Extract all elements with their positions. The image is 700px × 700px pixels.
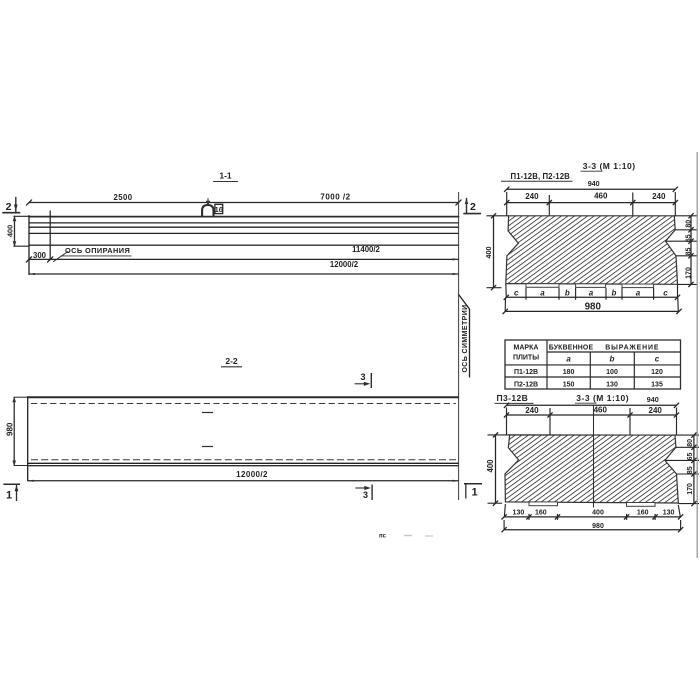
svg-text:400: 400: [6, 225, 15, 237]
svg-text:П3-12В: П3-12В: [497, 393, 529, 403]
svg-text:130: 130: [606, 381, 618, 388]
svg-text:7000 /2: 7000 /2: [320, 193, 350, 202]
svg-text:240: 240: [652, 192, 666, 201]
svg-text:b: b: [565, 289, 570, 298]
svg-text:2-2: 2-2: [225, 356, 238, 366]
svg-text:ПЛИТЫ: ПЛИТЫ: [513, 355, 539, 362]
svg-text:130: 130: [513, 510, 525, 517]
svg-text:100: 100: [606, 369, 618, 376]
svg-text:240: 240: [525, 192, 539, 201]
svg-text:ВЫРАЖЕНИЕ: ВЫРАЖЕНИЕ: [605, 345, 659, 352]
svg-text:1б: 1б: [215, 206, 224, 214]
svg-text:12000/2: 12000/2: [236, 470, 268, 479]
svg-text:460: 460: [594, 191, 608, 200]
svg-text:180: 180: [563, 369, 575, 376]
svg-text:150: 150: [563, 381, 575, 388]
svg-text:3: 3: [360, 372, 365, 382]
svg-text:a: a: [636, 289, 641, 298]
svg-text:1-1: 1-1: [219, 171, 232, 181]
svg-text:400: 400: [486, 459, 495, 473]
svg-text:65: 65: [687, 453, 694, 461]
svg-text:400: 400: [484, 246, 493, 258]
svg-text:c: c: [514, 289, 519, 298]
svg-text:ОСЬ СИММЕТРИИ: ОСЬ СИММЕТРИИ: [462, 304, 469, 372]
svg-text:b: b: [610, 355, 615, 364]
svg-text:МАРКА: МАРКА: [514, 344, 539, 351]
svg-text:3: 3: [363, 490, 368, 500]
svg-text:1: 1: [6, 490, 12, 502]
svg-text:80: 80: [685, 220, 692, 228]
svg-text:пс: пс: [379, 534, 387, 540]
svg-text:a: a: [589, 289, 594, 298]
svg-text:240: 240: [525, 406, 539, 415]
svg-text:160: 160: [637, 510, 649, 517]
svg-text:980: 980: [585, 301, 602, 312]
svg-text:2: 2: [6, 201, 12, 213]
svg-text:460: 460: [594, 406, 608, 415]
svg-text:11400/2: 11400/2: [352, 245, 380, 254]
svg-text:12000/2: 12000/2: [330, 260, 359, 269]
svg-text:80: 80: [687, 439, 694, 447]
svg-text:160: 160: [535, 510, 547, 517]
svg-text:240: 240: [649, 406, 663, 415]
svg-text:П2-12В: П2-12В: [514, 381, 538, 388]
svg-text:940: 940: [588, 179, 600, 188]
svg-text:300: 300: [33, 251, 47, 260]
svg-text:65: 65: [685, 234, 692, 242]
svg-text:1: 1: [472, 487, 478, 499]
svg-text:2: 2: [470, 201, 476, 213]
svg-text:85: 85: [685, 248, 692, 256]
svg-text:400: 400: [592, 510, 604, 517]
svg-text:3-3 (М 1:10): 3-3 (М 1:10): [576, 393, 629, 403]
svg-text:2500: 2500: [114, 193, 133, 202]
svg-text:85: 85: [687, 466, 694, 474]
svg-text:980: 980: [6, 422, 15, 436]
svg-text:940: 940: [647, 395, 659, 404]
svg-text:980: 980: [592, 523, 604, 530]
svg-text:БУКВЕННОЕ: БУКВЕННОЕ: [549, 345, 594, 352]
svg-text:a: a: [540, 289, 545, 298]
svg-text:3-3 (М 1:10): 3-3 (М 1:10): [583, 161, 636, 171]
svg-text:c: c: [655, 355, 660, 364]
svg-text:130: 130: [663, 510, 675, 517]
svg-text:П1-12В: П1-12В: [514, 369, 538, 376]
svg-text:a: a: [566, 355, 571, 364]
svg-text:170: 170: [687, 483, 694, 495]
svg-text:135: 135: [651, 381, 663, 388]
svg-text:b: b: [612, 289, 617, 298]
svg-text:120: 120: [651, 369, 663, 376]
svg-text:c: c: [663, 289, 668, 298]
svg-text:П1-12В, П2-12В: П1-12В, П2-12В: [511, 172, 571, 181]
svg-text:170: 170: [685, 267, 692, 279]
svg-text:ОСЬ ОПИРАНИЯ: ОСЬ ОПИРАНИЯ: [65, 246, 130, 255]
